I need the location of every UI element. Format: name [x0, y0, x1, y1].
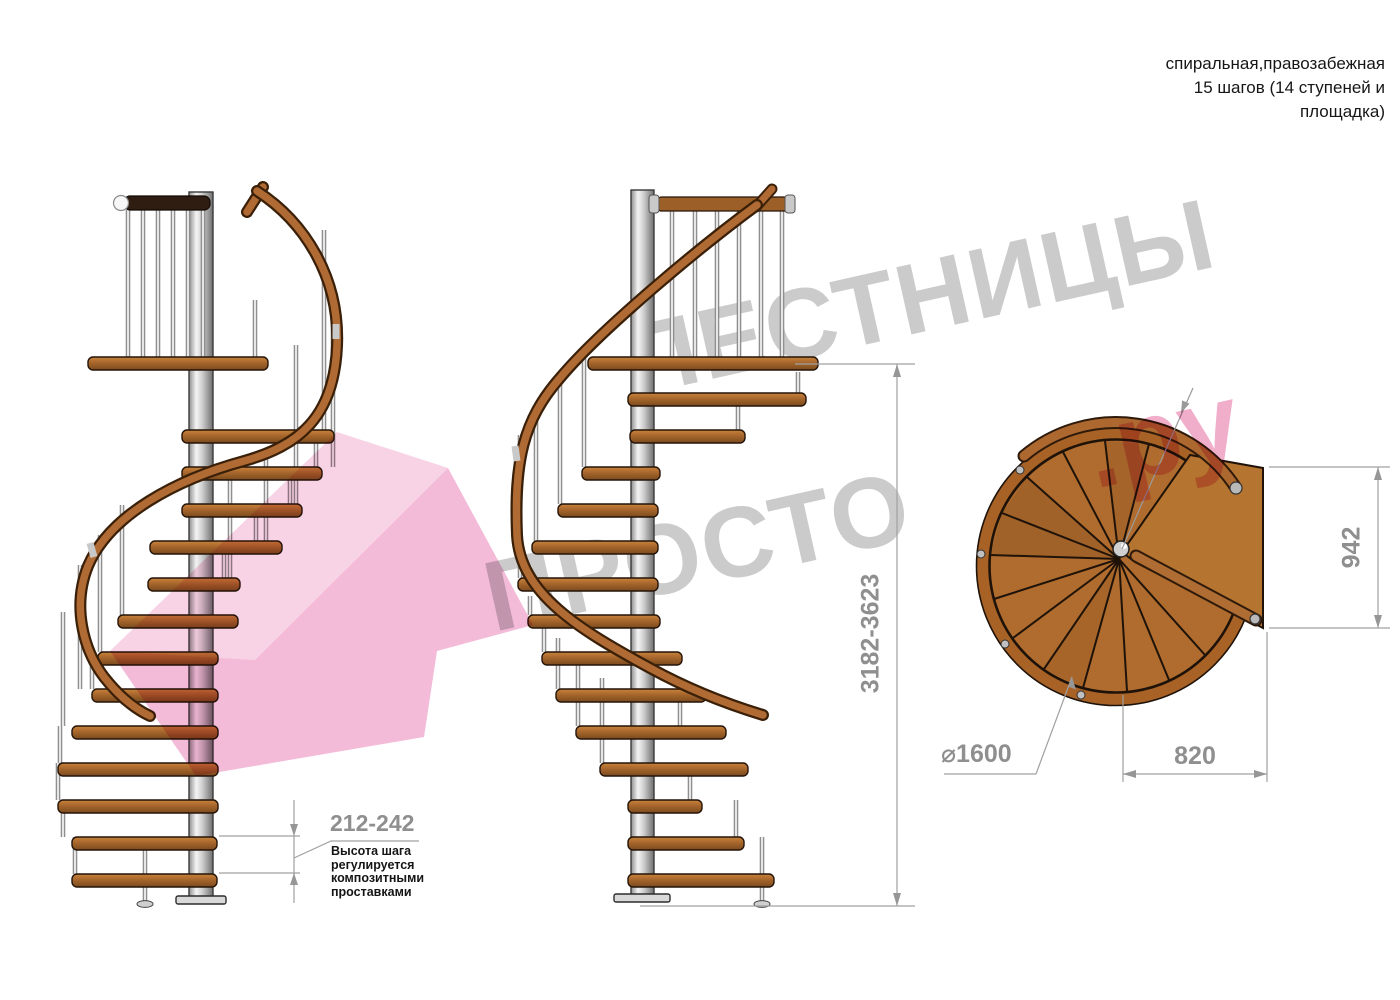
left-side-view — [58, 187, 337, 907]
title-line-1: спиральная,правозабежная — [985, 52, 1385, 76]
center-side-view — [515, 189, 818, 907]
rail-end-cap — [1250, 614, 1260, 624]
baluster-foot — [137, 901, 153, 908]
plan-view — [977, 388, 1264, 706]
title-line-3: площадка) — [985, 100, 1385, 124]
handrail-ball-cap — [114, 196, 129, 211]
title-line-2: 15 шагов (14 ступеней и — [985, 76, 1385, 100]
plan-center-pole — [1113, 541, 1129, 557]
left-top-handrail-bar — [124, 196, 210, 210]
dimension-landing-width: 820 — [1155, 744, 1235, 769]
dimension-total-height: 3182-3623 — [859, 559, 884, 709]
staircase-drawing — [0, 0, 1400, 1000]
drawing-title: спиральная,правозабежная 15 шагов (14 ст… — [985, 52, 1385, 124]
dimension-step-height: 212-242 — [330, 812, 414, 835]
bar-end-cap — [785, 195, 795, 213]
left-base-flange — [176, 896, 226, 904]
center-treads — [518, 357, 818, 887]
handrail-end-cap — [1230, 482, 1242, 494]
center-base-flange — [614, 894, 670, 902]
center-balusters — [520, 211, 798, 903]
dimension-diameter: ⌀1600 — [941, 742, 1012, 767]
dimension-plan-depth: 942 — [1340, 498, 1365, 598]
technical-drawing-page: ЛЕСТНИЦЫ ПРОСТО — [0, 0, 1400, 1000]
step-height-note: Высота шагарегулируетсякомпозитнымипрост… — [331, 845, 424, 899]
bar-end-cap — [649, 195, 659, 213]
leader-arrowhead — [1181, 400, 1190, 413]
